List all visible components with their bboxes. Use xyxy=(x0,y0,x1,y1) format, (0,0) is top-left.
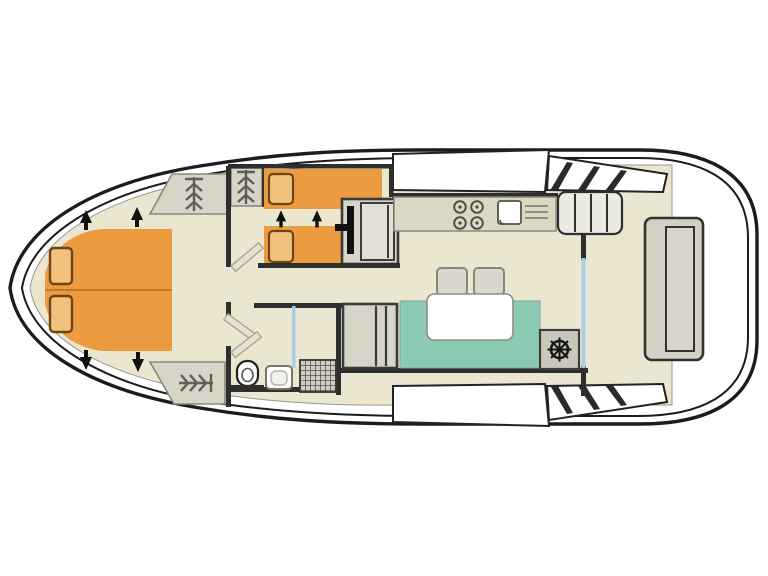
shower-tray xyxy=(300,360,336,392)
wall-twin-cabin-bottom xyxy=(258,263,400,268)
bow-pillow-bottom xyxy=(50,296,72,332)
dinette-table xyxy=(427,294,513,340)
wall-aft xyxy=(581,366,586,396)
windshield-top xyxy=(393,150,549,192)
storage-cabinet xyxy=(558,192,622,234)
windshield-bottom xyxy=(393,384,549,426)
helm-wheel xyxy=(548,338,572,362)
wall-aft xyxy=(581,234,586,260)
aft-bench xyxy=(645,218,703,360)
shower-partition xyxy=(292,306,296,368)
sliding-glass-door xyxy=(582,258,586,368)
upper-bed-pillow xyxy=(269,174,293,204)
companionway-steps xyxy=(343,304,397,368)
wall-corridor xyxy=(226,166,231,267)
dinette-stool xyxy=(474,268,504,295)
floorplan-drawing xyxy=(0,0,768,576)
bow-pillow-top xyxy=(50,248,72,284)
seat-post xyxy=(335,224,348,231)
seat-post xyxy=(347,206,354,254)
lower-bed-pillow xyxy=(269,231,293,262)
wall-bathroom-top xyxy=(254,303,342,308)
wall-front-connector xyxy=(389,164,394,197)
cabin-desk-seat-unit xyxy=(335,199,398,264)
boat-floorplan xyxy=(0,0,768,576)
wall-corridor xyxy=(226,346,231,407)
dinette-stool xyxy=(437,268,467,295)
bathroom-sink xyxy=(266,366,292,389)
wall-cabin-top xyxy=(228,164,392,169)
